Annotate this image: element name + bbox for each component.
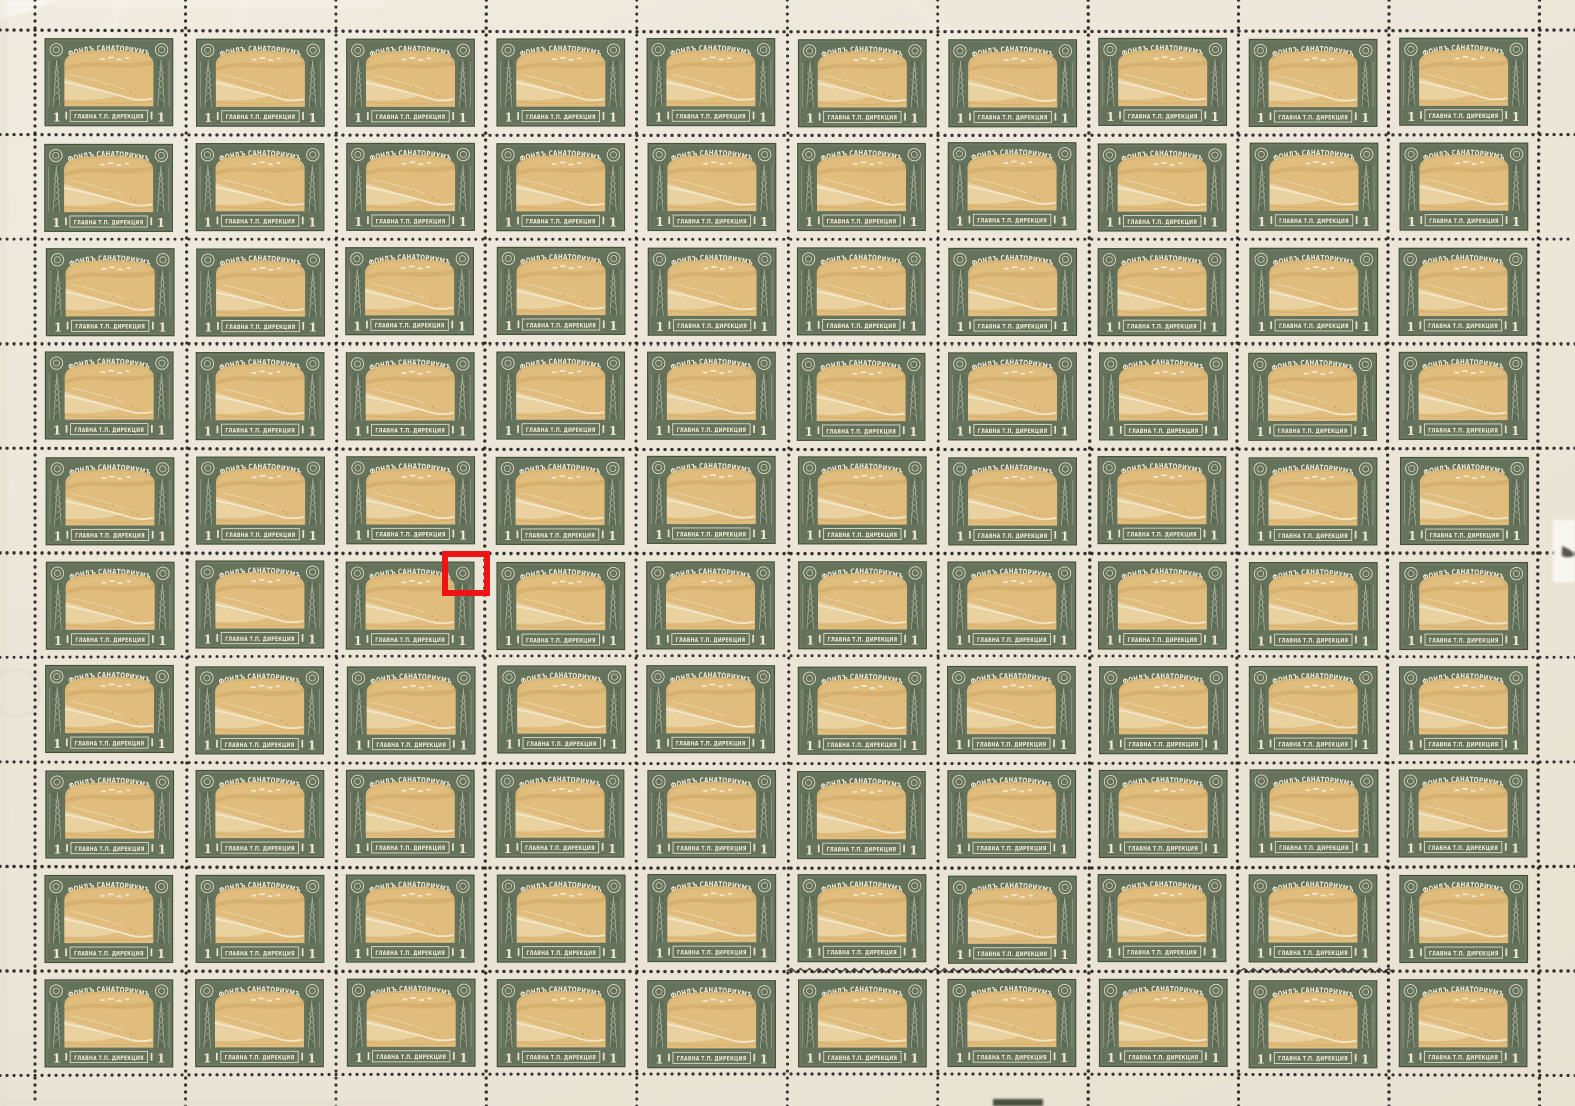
stamp (1098, 457, 1226, 544)
stamp (797, 353, 925, 440)
stamp (497, 247, 625, 334)
perforation-line (0, 656, 1575, 658)
stamp (1098, 875, 1226, 962)
stamp (197, 457, 325, 544)
stamp (948, 143, 1076, 230)
stamp (948, 771, 1076, 858)
stamp (1099, 770, 1227, 857)
stamp (497, 980, 625, 1067)
stamp (797, 248, 925, 335)
stamp (45, 144, 173, 231)
stamp (1249, 563, 1377, 650)
stamp (798, 40, 926, 127)
stamp (497, 875, 625, 962)
perforation-line (185, 0, 187, 1106)
stamp (498, 666, 626, 753)
stamp (197, 39, 325, 126)
stamp (1400, 667, 1528, 754)
stamp (1400, 562, 1528, 649)
stamp (1399, 248, 1527, 335)
stamp (647, 562, 775, 649)
stamp (799, 562, 927, 649)
stamp (497, 562, 625, 649)
stamp (648, 248, 776, 335)
stamp (45, 39, 173, 126)
stamp (798, 667, 926, 754)
stamp (1249, 981, 1377, 1068)
stamp-sheet-scan: ФОНДЪ САНАТОРИУМЪ (0, 0, 1575, 1106)
stamp (46, 249, 174, 336)
stamp (1399, 352, 1527, 439)
stamp (346, 875, 474, 962)
stamp (45, 352, 173, 439)
stamp (798, 143, 926, 230)
stamp (496, 457, 624, 544)
perforation-line (0, 135, 1575, 136)
stamp (197, 249, 325, 336)
stamp (647, 456, 775, 543)
stamp (1399, 980, 1527, 1067)
stamp (347, 143, 475, 230)
stamp (196, 980, 324, 1067)
stamp (949, 458, 1077, 545)
sheet-scan-svg: ФОНДЪ САНАТОРИУМЪ (0, 0, 1575, 1106)
stamp (948, 666, 1076, 753)
stamp (798, 875, 926, 962)
stamp (1400, 875, 1528, 962)
stamp (1100, 667, 1228, 754)
stamp (1250, 248, 1378, 335)
stamp (648, 143, 776, 230)
stamp (1250, 770, 1378, 857)
stamp (46, 665, 174, 752)
stamp (648, 771, 776, 858)
stamp (346, 770, 474, 857)
annotation-highlight-box[interactable] (442, 551, 490, 596)
stamp (798, 772, 926, 859)
stamp (1250, 143, 1378, 230)
stamp (949, 876, 1077, 963)
stamp (46, 771, 174, 858)
stamp (196, 353, 324, 440)
stamp (1100, 353, 1228, 440)
stamp (648, 875, 776, 962)
stamp (798, 457, 926, 544)
stamp (196, 561, 324, 648)
stamp (1099, 979, 1227, 1066)
stamp (648, 981, 776, 1068)
stamp (346, 353, 474, 440)
stamp (347, 979, 475, 1066)
stamp (799, 980, 927, 1067)
stamp (647, 666, 775, 753)
stamp (948, 979, 1076, 1066)
stamp (949, 248, 1077, 335)
stamp (949, 353, 1077, 440)
stamp (347, 39, 475, 126)
stamp (497, 352, 625, 439)
stamp (196, 875, 324, 962)
stamp (1249, 353, 1377, 440)
perforation-line (0, 1074, 1575, 1076)
stamp (497, 144, 625, 231)
stamp (347, 667, 475, 754)
stamp (346, 248, 474, 335)
stamp (196, 770, 324, 857)
perforation-line (1388, 0, 1390, 1106)
stamp (496, 770, 624, 857)
stamp (46, 458, 174, 545)
stamp (948, 562, 1076, 649)
stamp (1400, 38, 1528, 125)
torn-perforation-zigzag (787, 969, 1066, 973)
stamp (196, 144, 324, 231)
stamp (196, 667, 324, 754)
stamp (45, 875, 173, 962)
stamp (1249, 666, 1377, 753)
stamp (1399, 770, 1527, 857)
stamp (1249, 458, 1377, 545)
stamp (347, 457, 475, 544)
stamp (949, 40, 1077, 127)
stamp (45, 980, 173, 1067)
stamp (1098, 144, 1226, 231)
stamp (1098, 249, 1226, 336)
stamp (1400, 143, 1528, 230)
stamp (647, 39, 775, 126)
stamp (1249, 875, 1377, 962)
stamp (497, 39, 625, 126)
stamp (1249, 39, 1377, 126)
perforation-line (787, 0, 789, 1106)
perforation-line (1088, 0, 1090, 1106)
stamp (1401, 457, 1529, 544)
stamp (46, 562, 174, 649)
stamp (648, 352, 776, 439)
stamp (1099, 562, 1227, 649)
stamp (1099, 38, 1227, 125)
